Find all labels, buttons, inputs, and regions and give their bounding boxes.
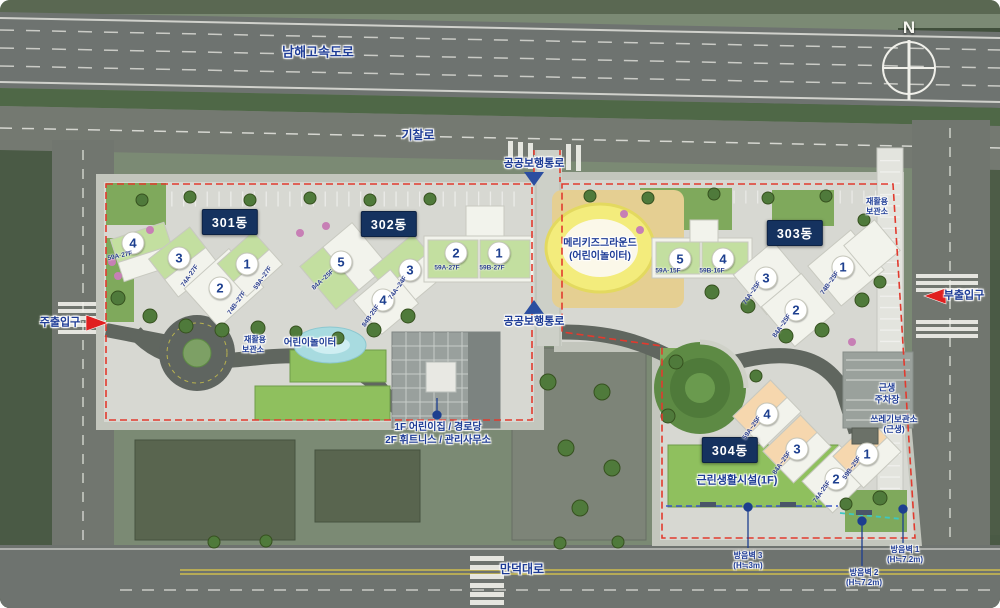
site-plan: N 남해고속도로 기찰로 만덕대로 공공보행통로 공공보행통로 주출입구 부출입… — [0, 0, 1000, 608]
site-plan-graphic — [0, 0, 1000, 608]
soundwall-1-name: 방음벽 1 — [891, 546, 920, 554]
daycare-label-line2: 2F 휘트니스 / 관리사무소 — [385, 436, 491, 446]
main-entrance-label: 주출입구 — [40, 318, 80, 329]
sub-entrance-label: 부출입구 — [944, 291, 984, 302]
merry-kids-label-line1: 메리키즈그라운드 — [563, 239, 637, 249]
building-badge-302: 302동 — [361, 211, 417, 237]
recycle-label-line1: 재활용 — [244, 336, 266, 344]
unit-circle-301-2: 2 — [209, 277, 232, 300]
soundwall-3-name: 방음벽 3 — [734, 552, 763, 560]
daycare-label-line1: 1F 어린이집 / 경로당 — [394, 423, 481, 433]
trash-storage-label-line2: (근생) — [883, 425, 904, 434]
unit-type-303-5: 59A·15F — [655, 268, 680, 275]
retail-parking-label-line1: 근생 — [879, 384, 896, 393]
soundwall-1-height: (H≒7.2m) — [887, 556, 923, 564]
compass-north-label: N — [903, 18, 915, 38]
road-label-manduk: 만덕대로 — [500, 563, 544, 575]
recycle-label-line2: 보관소 — [242, 346, 264, 354]
unit-circle-301-1: 1 — [236, 253, 259, 276]
unit-type-302-2: 59A·27F — [434, 265, 459, 272]
merry-kids-label-line2: (어린이놀이터) — [569, 252, 631, 262]
public-path-label-mid: 공공보행통로 — [504, 317, 565, 328]
playground-label: 어린이놀이터 — [284, 338, 336, 348]
soundwall-3-height: (H≒3m) — [733, 562, 762, 570]
neighborhood-facility-label: 근린생활시설(1F) — [697, 476, 778, 487]
unit-type-303-4: 59B·16F — [699, 268, 724, 275]
soundwall-2-name: 방음벽 2 — [850, 569, 879, 577]
unit-circle-302-1: 1 — [488, 242, 511, 265]
recycle-right-label-line1: 재활용 — [866, 198, 888, 206]
building-badge-303: 303동 — [767, 220, 823, 246]
trash-storage-label-line1: 쓰레기보관소 — [871, 415, 918, 424]
public-path-label-top: 공공보행통로 — [504, 159, 565, 170]
retail-parking-label-line2: 주차장 — [875, 396, 900, 405]
recycle-right-label-line2: 보관소 — [866, 208, 888, 216]
unit-type-302-1: 59B·27F — [479, 265, 504, 272]
soundwall-2-height: (H≒7.2m) — [846, 579, 882, 587]
road-label-gichal: 기찰로 — [401, 129, 434, 141]
unit-circle-302-2: 2 — [445, 242, 468, 265]
road-label-highway: 남해고속도로 — [282, 46, 354, 59]
building-badge-301: 301동 — [202, 209, 258, 235]
unit-circle-301-3: 3 — [168, 247, 191, 270]
building-badge-304: 304동 — [702, 437, 758, 463]
community-building — [392, 332, 500, 428]
